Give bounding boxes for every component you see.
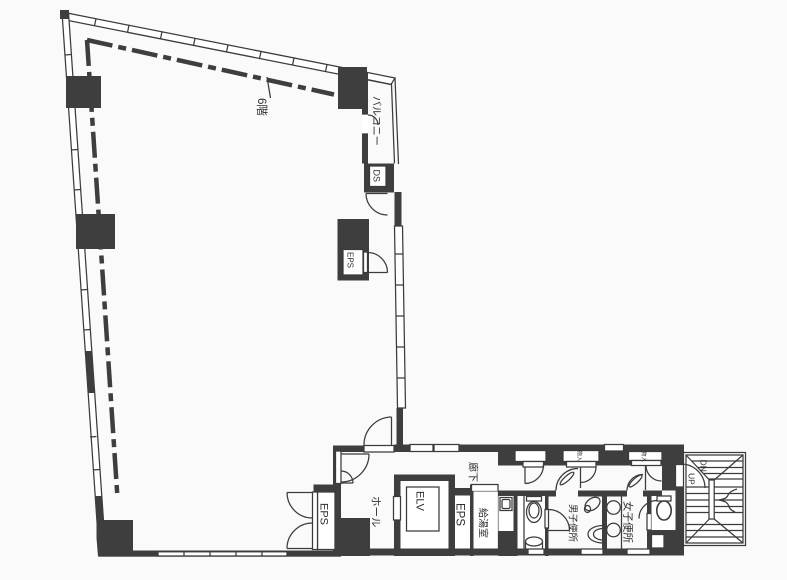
svg-text:ELV: ELV: [414, 491, 426, 512]
svg-text:6階: 6階: [255, 98, 269, 116]
svg-text:UP: UP: [687, 473, 697, 485]
svg-text:DS: DS: [372, 170, 382, 183]
svg-text:男子便所: 男子便所: [567, 504, 579, 543]
svg-text:女子便所: 女子便所: [622, 501, 635, 543]
svg-text:バルコニー: バルコニー: [370, 96, 382, 146]
svg-text:EPS: EPS: [454, 503, 466, 526]
svg-text:EPS: EPS: [318, 503, 330, 525]
svg-text:廊下: 廊下: [467, 462, 480, 482]
svg-text:EPS: EPS: [346, 252, 355, 268]
svg-text:物入: 物入: [576, 451, 584, 463]
svg-text:ホール: ホール: [370, 496, 382, 528]
svg-text:物入: 物入: [640, 451, 648, 463]
svg-text:DN: DN: [699, 460, 709, 472]
svg-text:給湯室: 給湯室: [477, 508, 490, 538]
